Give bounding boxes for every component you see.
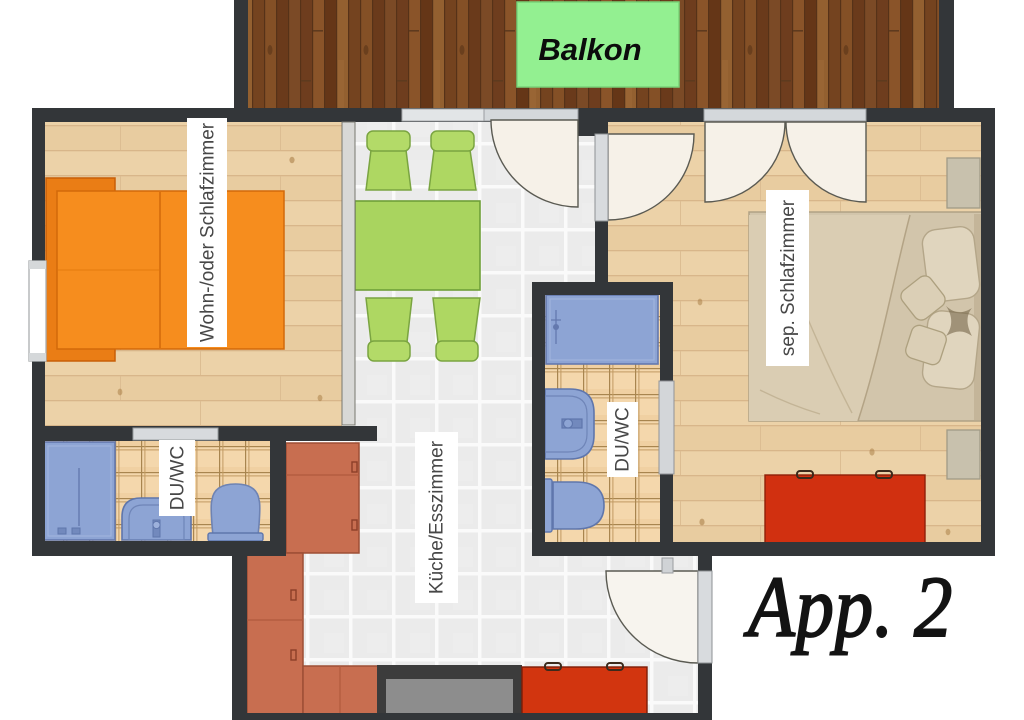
svg-text:DU/WC: DU/WC: [168, 446, 189, 510]
svg-text:Balkon: Balkon: [538, 32, 641, 67]
svg-text:DU/WC: DU/WC: [613, 407, 634, 471]
svg-text:Küche/Esszimmer: Küche/Esszimmer: [427, 440, 448, 594]
svg-text:sep. Schlafzimmer: sep. Schlafzimmer: [778, 199, 799, 356]
svg-text:App. 2: App. 2: [743, 558, 953, 655]
svg-text:Wohn-/oder Schlafzimmer: Wohn-/oder Schlafzimmer: [198, 122, 219, 342]
